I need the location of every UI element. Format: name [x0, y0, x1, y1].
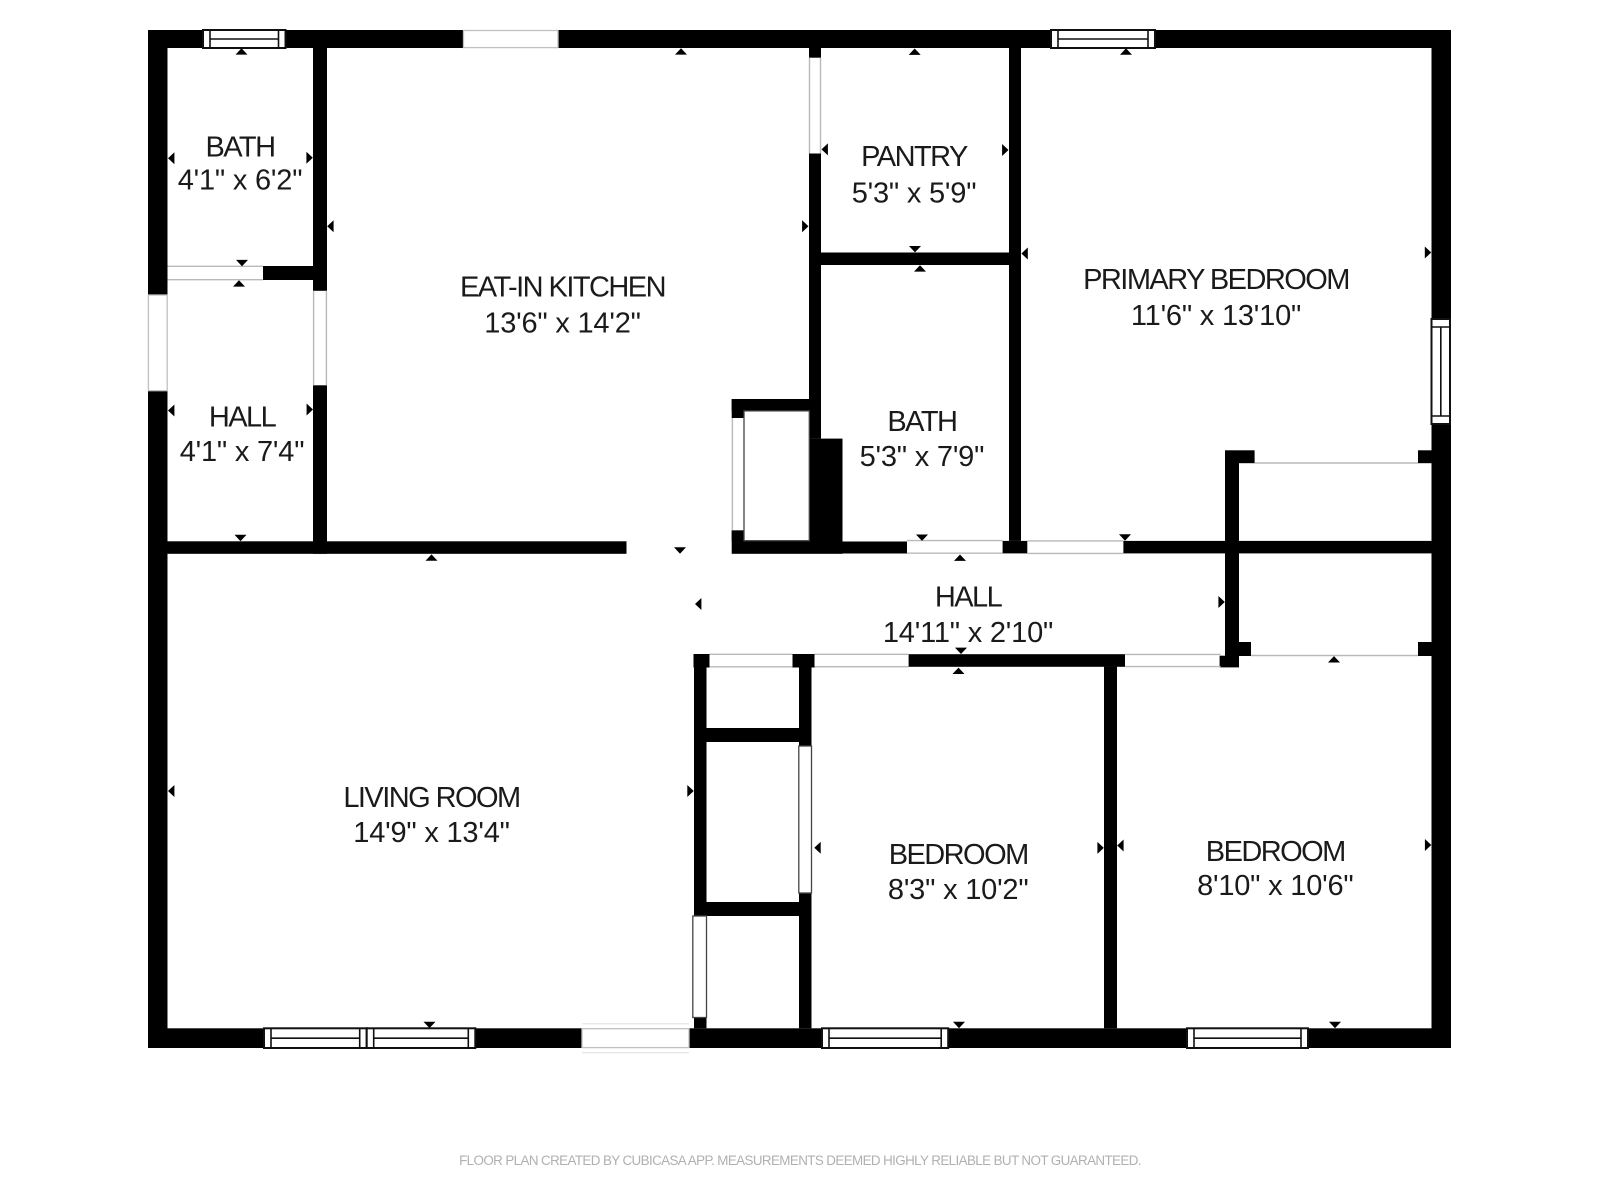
svg-text:14'11" x 2'10": 14'11" x 2'10"	[883, 617, 1053, 649]
svg-text:FLOOR PLAN CREATED BY CUBICASA: FLOOR PLAN CREATED BY CUBICASA APP. MEAS…	[459, 1153, 1141, 1168]
svg-text:8'10" x 10'6": 8'10" x 10'6"	[1197, 870, 1353, 902]
svg-text:13'6" x 14'2": 13'6" x 14'2"	[484, 307, 640, 339]
svg-text:PANTRY: PANTRY	[861, 141, 968, 173]
svg-text:11'6" x 13'10": 11'6" x 13'10"	[1131, 300, 1301, 332]
svg-text:14'9" x 13'4": 14'9" x 13'4"	[353, 817, 509, 849]
svg-text:4'1" x 6'2": 4'1" x 6'2"	[178, 164, 303, 196]
svg-text:BATH: BATH	[206, 132, 275, 164]
svg-text:5'3" x 7'9": 5'3" x 7'9"	[860, 441, 985, 473]
svg-text:BEDROOM: BEDROOM	[1206, 836, 1345, 868]
svg-text:5'3" x 5'9": 5'3" x 5'9"	[852, 177, 977, 209]
svg-text:BEDROOM: BEDROOM	[889, 839, 1028, 871]
svg-text:EAT-IN KITCHEN: EAT-IN KITCHEN	[460, 272, 665, 304]
svg-text:BATH: BATH	[887, 406, 956, 438]
svg-text:HALL: HALL	[209, 402, 277, 434]
svg-text:HALL: HALL	[935, 581, 1003, 613]
svg-text:PRIMARY BEDROOM: PRIMARY BEDROOM	[1083, 264, 1349, 296]
svg-text:8'3" x 10'2": 8'3" x 10'2"	[888, 874, 1029, 906]
svg-text:4'1" x 7'4": 4'1" x 7'4"	[180, 436, 305, 468]
svg-text:LIVING ROOM: LIVING ROOM	[343, 782, 519, 814]
